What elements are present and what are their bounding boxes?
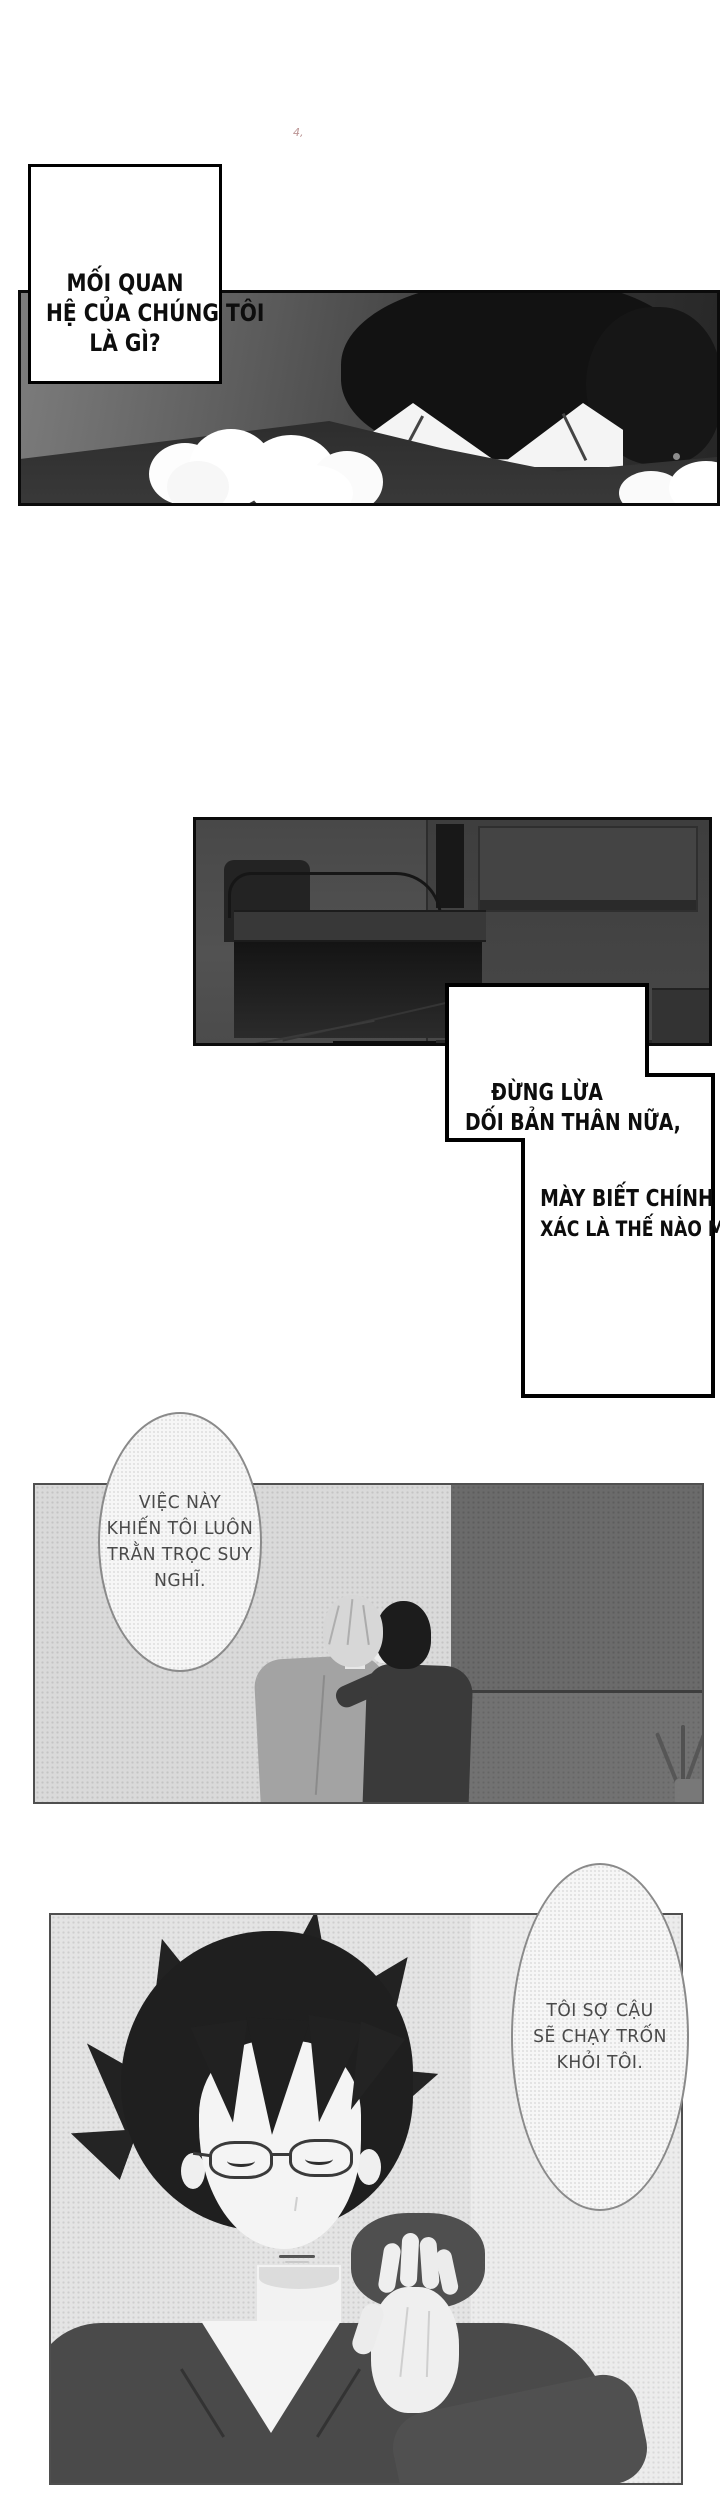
caption-line: HỆ CỦA CHÚNG TÔI <box>46 298 204 328</box>
speech-bubble-2: TÔI SỢ CẬU SẼ CHẠY TRỐN KHỎI TÔI. <box>511 1863 689 2211</box>
wall-lower-shade <box>451 1693 704 1804</box>
figure-dark-hair <box>375 1601 431 1669</box>
bed-mattress <box>234 910 486 942</box>
caption-box: MỐI QUAN HỆ CỦA CHÚNG TÔI LÀ GÌ? <box>28 164 222 384</box>
bubble-line: VIỆC NÀY <box>104 1490 256 1516</box>
bubble-line: KHIẾN TÔI LUÔN <box>104 1516 256 1542</box>
speech-box-2: MÀY BIẾT CHÍNH XÁC LÀ THẾ NÀO MÀ. <box>523 1184 713 1244</box>
ear-right <box>357 2149 381 2185</box>
wall-panel-shadow <box>480 900 696 910</box>
mouth-shadow <box>285 2261 309 2263</box>
glasses-bridge <box>271 2153 291 2156</box>
speech-box-line: MÀY BIẾT CHÍNH <box>540 1184 696 1214</box>
speech-bubble-1: VIỆC NÀY KHIẾN TÔI LUÔN TRẰN TRỌC SUY NG… <box>98 1412 262 1672</box>
bubble-line: TÔI SỢ CẬU <box>517 1998 682 2024</box>
neck-shadow <box>259 2267 339 2289</box>
comic-page: 4, MỐI QUAN HỆ CỦA CHÚNG TÔI LÀ GÌ? <box>0 0 720 2500</box>
speech-box-line: DỐI BẢN THÂN NỮA, <box>465 1108 629 1138</box>
hand-palm <box>371 2287 459 2413</box>
caption-line: MỐI QUAN <box>46 268 204 298</box>
bed-base-edge <box>333 1041 453 1046</box>
bubble-line: SẼ CHẠY TRỐN <box>517 2024 682 2050</box>
dust-speck <box>673 453 680 460</box>
eye-left <box>227 2155 255 2167</box>
fur-tuft <box>167 461 229 506</box>
caption-line: LÀ GÌ? <box>46 328 204 358</box>
speech-box-1: ĐỪNG LỪA DỐI BẢN THÂN NỮA, <box>447 1078 647 1138</box>
speech-box-line: XÁC LÀ THẾ NÀO MÀ. <box>540 1214 696 1244</box>
doorway-dark <box>436 824 464 908</box>
eye-right <box>305 2153 333 2165</box>
bubble-line: NGHĨ. <box>104 1568 256 1594</box>
bubble-line: KHỎI TÔI. <box>517 2050 682 2076</box>
hand-finger <box>400 2233 420 2288</box>
mouth-line <box>279 2255 315 2258</box>
speech-box-line: ĐỪNG LỪA <box>465 1078 629 1108</box>
plant-leaf <box>681 1725 685 1785</box>
page-number-mark: 4, <box>293 126 304 139</box>
plant-pot <box>675 1779 703 1804</box>
bubble-line: TRẰN TRỌC SUY <box>104 1542 256 1568</box>
